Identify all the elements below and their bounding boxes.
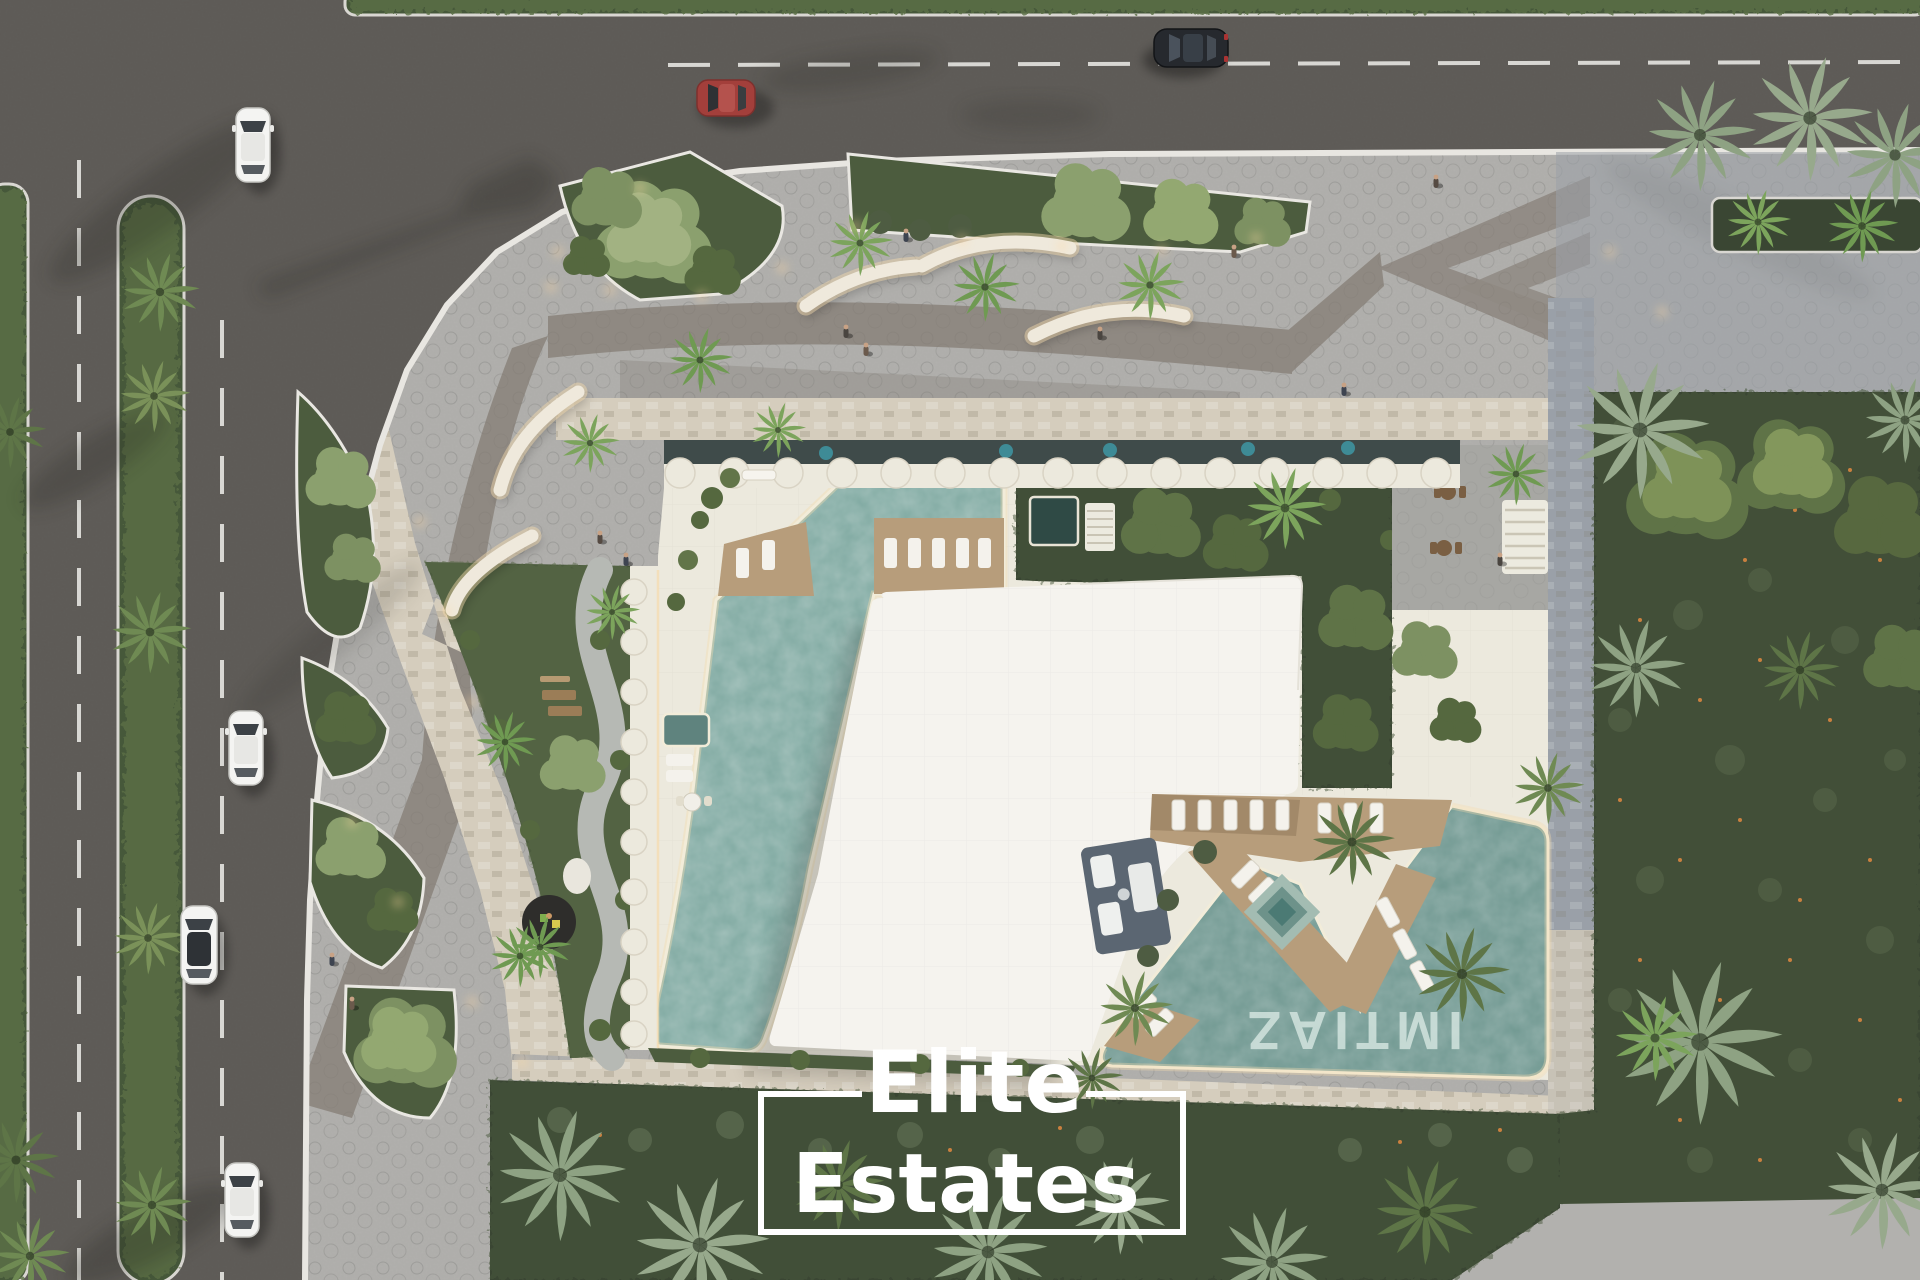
spa-pool bbox=[1030, 497, 1078, 545]
aerial-render-image: IMTIAZ bbox=[0, 0, 1920, 1280]
left-hedge-strip bbox=[0, 184, 28, 1280]
site-plan-canvas: IMTIAZ bbox=[0, 0, 1920, 1280]
median-planter bbox=[118, 196, 184, 1280]
north-facade bbox=[664, 440, 1460, 488]
watermark-line1: Elite bbox=[865, 1033, 1083, 1133]
sculpture-seat bbox=[563, 858, 591, 894]
top-hedge-strip bbox=[345, 0, 1920, 15]
facade-scallops bbox=[665, 458, 1451, 488]
court-pergola bbox=[1502, 500, 1548, 574]
pergola bbox=[1085, 503, 1115, 551]
watermark-line2: Estates bbox=[792, 1137, 1140, 1232]
pool-branding-text: IMTIAZ bbox=[1241, 1000, 1463, 1060]
canopy-sofa bbox=[742, 470, 776, 480]
